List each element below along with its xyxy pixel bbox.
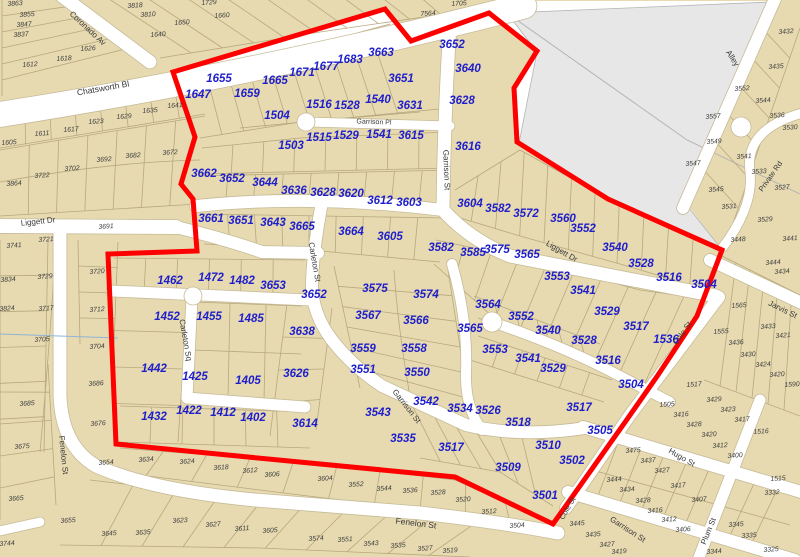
parcel-label[interactable]: 3741: [6, 242, 22, 250]
parcel-label[interactable]: 3611: [235, 525, 250, 533]
selected-parcel-label[interactable]: 1665: [262, 75, 288, 87]
selected-parcel-label[interactable]: 3542: [413, 396, 439, 408]
selected-parcel-label[interactable]: 1462: [157, 275, 183, 287]
parcel-label[interactable]: 3433: [760, 323, 776, 331]
selected-parcel-label[interactable]: 3517: [438, 442, 464, 454]
selected-parcel-label[interactable]: 1528: [334, 100, 360, 112]
parcel-label[interactable]: 3612: [242, 467, 258, 475]
selected-parcel-label[interactable]: 3509: [495, 462, 521, 474]
parcel-label[interactable]: 1517: [686, 381, 702, 389]
selected-parcel-label[interactable]: 3616: [455, 141, 481, 153]
parcel-label[interactable]: 3434: [619, 486, 635, 494]
selected-parcel-label[interactable]: 1442: [141, 363, 167, 375]
selected-parcel-label[interactable]: 3565: [457, 323, 483, 335]
selected-parcel-label[interactable]: 3564: [475, 299, 501, 311]
selected-parcel-label[interactable]: 3574: [413, 289, 439, 301]
selected-parcel-label[interactable]: 3628: [310, 187, 336, 199]
parcel-label[interactable]: 3574: [308, 535, 324, 543]
selected-parcel-label[interactable]: 3585: [460, 247, 486, 259]
cul-de-sac-bulb: [731, 117, 751, 137]
parcel-label[interactable]: 3520: [455, 496, 471, 504]
selected-parcel-label[interactable]: 3651: [388, 73, 414, 85]
parcel-label[interactable]: 3535: [390, 542, 406, 550]
parcel-label[interactable]: 3824: [0, 305, 15, 313]
selected-parcel-label[interactable]: 3504: [618, 379, 644, 391]
parcel-label[interactable]: 3837: [13, 31, 29, 39]
parcel-label[interactable]: 1729: [201, 0, 217, 7]
selected-parcel-label[interactable]: 3551: [350, 364, 376, 376]
selected-parcel-label[interactable]: 3528: [571, 335, 597, 347]
selected-parcel-label[interactable]: 3665: [289, 221, 315, 233]
parcel-label[interactable]: 1635: [142, 107, 158, 115]
parcel-label[interactable]: 1640: [150, 31, 166, 39]
parcel-label[interactable]: 3435: [768, 63, 784, 71]
parcel-label[interactable]: 3448: [730, 236, 746, 244]
parcel-label[interactable]: 3423: [720, 406, 736, 414]
selected-parcel-label[interactable]: 3652: [439, 39, 465, 51]
selected-parcel-label[interactable]: 3540: [535, 325, 561, 337]
selected-parcel-label[interactable]: 3518: [505, 417, 531, 429]
parcel-label[interactable]: 3551: [337, 536, 353, 544]
parcel-label[interactable]: 1641: [167, 102, 183, 110]
selected-parcel-label[interactable]: 1503: [278, 140, 304, 152]
parcel-label[interactable]: 3552: [734, 85, 750, 93]
selected-parcel-label[interactable]: 3541: [570, 285, 596, 297]
parcel-label[interactable]: 3407: [691, 496, 707, 504]
parcel-label[interactable]: 3645: [101, 530, 117, 538]
parcel-label[interactable]: 3704: [89, 343, 105, 351]
selected-parcel-label[interactable]: 3651: [228, 215, 254, 227]
selected-parcel-label[interactable]: 3558: [401, 343, 427, 355]
selected-parcel-label[interactable]: 1529: [333, 130, 359, 142]
parcel-label[interactable]: 3810: [140, 11, 156, 19]
parcel-label[interactable]: 3412: [661, 516, 677, 524]
parcel-label[interactable]: 3729: [37, 273, 53, 281]
parcel-label[interactable]: 3864: [6, 180, 22, 188]
parcel-label[interactable]: 3543: [363, 540, 379, 548]
selected-parcel-label[interactable]: 3636: [281, 185, 307, 197]
parcel-label[interactable]: 3818: [127, 2, 143, 10]
selected-parcel-label[interactable]: 3604: [457, 198, 483, 210]
selected-parcel-label[interactable]: 3528: [628, 258, 654, 270]
selected-parcel-label[interactable]: 3566: [403, 315, 429, 327]
selected-parcel-label[interactable]: 3620: [338, 188, 364, 200]
parcel-label[interactable]: 3424: [755, 361, 771, 369]
parcel-label[interactable]: 1515: [770, 475, 786, 483]
parcel-label[interactable]: 3441: [782, 235, 798, 243]
parcel-label[interactable]: 3344: [706, 548, 722, 556]
parcel-label[interactable]: 3712: [89, 306, 105, 314]
parcel-label[interactable]: 3512: [481, 508, 497, 516]
selected-parcel-label[interactable]: 1455: [196, 311, 222, 323]
parcel-label[interactable]: 3604: [317, 475, 333, 483]
parcel-label[interactable]: 1623: [88, 118, 104, 126]
parcel-label[interactable]: 3635: [135, 529, 151, 537]
street-label: Garrison Pl: [356, 118, 392, 126]
parcel-label[interactable]: 3519: [442, 547, 458, 555]
selected-parcel-label[interactable]: 3662: [191, 168, 217, 180]
parcel-label[interactable]: 3531: [721, 203, 737, 211]
selected-parcel-label[interactable]: 3575: [484, 244, 510, 256]
parcel-label[interactable]: 3544: [376, 485, 392, 493]
parcel-label[interactable]: 3427: [654, 467, 670, 475]
parcel-label[interactable]: 3855: [19, 11, 35, 19]
selected-parcel-label[interactable]: 1412: [210, 407, 236, 419]
selected-parcel-label[interactable]: 3567: [355, 310, 381, 322]
parcel-label[interactable]: 3545: [708, 186, 724, 194]
parcel-label[interactable]: 3445: [569, 520, 585, 528]
parcel-label[interactable]: 1505: [659, 401, 675, 409]
parcel-label[interactable]: 3676: [90, 420, 106, 428]
parcel-label[interactable]: 3605: [262, 527, 278, 535]
selected-parcel-label[interactable]: 3652: [301, 289, 327, 301]
parcel-label[interactable]: 3416: [673, 411, 689, 419]
selected-parcel-label[interactable]: 3582: [428, 242, 454, 254]
parcel-label[interactable]: 1611: [35, 130, 50, 138]
parcel-label[interactable]: 3420: [769, 371, 785, 379]
selected-parcel-label[interactable]: 3653: [260, 280, 286, 292]
selected-parcel-label[interactable]: 3605: [377, 231, 403, 243]
selected-parcel-label[interactable]: 1541: [366, 129, 392, 141]
selected-parcel-label[interactable]: 1540: [365, 94, 391, 106]
selected-parcel-label[interactable]: 1432: [141, 411, 167, 423]
parcel-label[interactable]: 3430: [740, 351, 756, 359]
parcel-label[interactable]: 1650: [174, 19, 190, 27]
selected-parcel-label[interactable]: 3652: [219, 173, 245, 185]
parcel-label[interactable]: 1626: [80, 45, 96, 53]
parcel-label[interactable]: 3432: [778, 28, 794, 36]
parcel-label[interactable]: 3421: [775, 332, 791, 340]
parcel-label[interactable]: 3720: [89, 268, 105, 276]
parcel-label[interactable]: 3528: [430, 489, 446, 497]
selected-parcel-label[interactable]: 1425: [182, 371, 208, 383]
parcel-label[interactable]: 3721: [38, 236, 54, 244]
parcel-label[interactable]: 3654: [98, 459, 114, 467]
parcel-label[interactable]: 1516: [753, 428, 769, 436]
selected-parcel-label[interactable]: 3529: [594, 306, 620, 318]
parcel-label[interactable]: 3533: [751, 168, 767, 176]
selected-parcel-label[interactable]: 3615: [398, 130, 424, 142]
parcel-label[interactable]: 3536: [769, 112, 785, 120]
parcel-label[interactable]: 3332: [764, 489, 780, 497]
selected-parcel-label[interactable]: 3526: [475, 405, 501, 417]
selected-parcel-label[interactable]: 3626: [283, 368, 309, 380]
selected-parcel-label[interactable]: 1472: [198, 272, 224, 284]
parcel-label[interactable]: 3541: [736, 153, 752, 161]
selected-parcel-label[interactable]: 3502: [559, 455, 585, 467]
parcel-label[interactable]: 1612: [22, 61, 38, 69]
parcel-label[interactable]: 3606: [264, 471, 280, 479]
selected-parcel-label[interactable]: 3505: [587, 425, 613, 437]
parcel-label[interactable]: 1618: [56, 55, 72, 63]
selected-parcel-label[interactable]: 3529: [540, 363, 566, 375]
selected-parcel-label[interactable]: 3603: [396, 197, 422, 209]
parcel-label[interactable]: 3527: [774, 184, 790, 192]
parcel-label[interactable]: 3672: [162, 149, 178, 157]
parcel-label[interactable]: 3436: [728, 339, 744, 347]
selected-parcel-label[interactable]: 3664: [338, 226, 364, 238]
parcel-label[interactable]: 1617: [63, 126, 79, 134]
parcel-label[interactable]: 3627: [205, 521, 221, 529]
selected-parcel-label[interactable]: 3612: [367, 195, 393, 207]
selected-parcel-label[interactable]: 3643: [260, 217, 286, 229]
parcel-label[interactable]: 3717: [38, 305, 54, 313]
selected-parcel-label[interactable]: 3541: [515, 353, 541, 365]
parcel-label[interactable]: 3444: [606, 476, 622, 484]
selected-parcel-label[interactable]: 1422: [176, 405, 202, 417]
selected-parcel-label[interactable]: 3565: [514, 249, 540, 261]
parcel-label[interactable]: 3623: [172, 517, 188, 525]
parcel-label[interactable]: 3345: [728, 521, 744, 529]
parcel-label[interactable]: 1660: [214, 12, 230, 20]
parcel-label[interactable]: 3530: [782, 124, 798, 132]
selected-parcel-label[interactable]: 3543: [365, 407, 391, 419]
selected-parcel-label[interactable]: 3552: [570, 223, 596, 235]
selected-parcel-label[interactable]: 3640: [455, 63, 481, 75]
parcel-label[interactable]: 3529: [757, 216, 773, 224]
parcel-label[interactable]: 3549: [706, 138, 722, 146]
selected-parcel-label[interactable]: 3644: [252, 177, 278, 189]
parcel-label[interactable]: 3429: [706, 396, 722, 404]
parcel-label[interactable]: 3552: [348, 481, 364, 489]
parcel-label[interactable]: 3444: [765, 259, 781, 267]
parcel-label[interactable]: 3536: [402, 487, 418, 495]
selected-parcel-label[interactable]: 3516: [656, 272, 682, 284]
parcel-label[interactable]: 3686: [88, 380, 104, 388]
cul-de-sac-bulb: [297, 113, 315, 131]
selected-parcel-label[interactable]: 1482: [229, 275, 255, 287]
parcel-label[interactable]: 3435: [585, 531, 601, 539]
selected-parcel-label[interactable]: 3510: [535, 440, 561, 452]
selected-parcel-label[interactable]: 3559: [350, 343, 376, 355]
selected-parcel-label[interactable]: 3661: [198, 213, 224, 225]
parcel-label[interactable]: 3655: [60, 517, 76, 525]
parcel-label[interactable]: 3722: [34, 172, 50, 180]
parcel-label[interactable]: 3419: [611, 548, 627, 556]
cul-de-sac-bulb: [482, 312, 502, 332]
parcel-label[interactable]: 3705: [34, 336, 50, 344]
parcel-label[interactable]: 3702: [64, 165, 80, 173]
parcel-label[interactable]: 3618: [213, 464, 229, 472]
parcel-label[interactable]: 1565: [731, 302, 747, 310]
parcel-label[interactable]: 3416: [647, 507, 663, 515]
parcel-label[interactable]: 3744: [0, 540, 15, 548]
parcel-label[interactable]: 3417: [734, 416, 750, 424]
selected-parcel-label[interactable]: 1647: [185, 89, 211, 101]
selected-parcel-label[interactable]: 1671: [289, 67, 315, 79]
selected-parcel-label[interactable]: 1452: [154, 311, 180, 323]
selected-parcel-label[interactable]: 3628: [449, 95, 475, 107]
parcel-label[interactable]: 1555: [713, 328, 729, 336]
parcel-label[interactable]: 3691: [98, 223, 114, 231]
parcel-label[interactable]: 3428: [686, 421, 702, 429]
parcel-label[interactable]: 3412: [712, 442, 728, 450]
parcel-label[interactable]: 3547: [685, 160, 701, 168]
selected-parcel-label[interactable]: 3553: [544, 271, 570, 283]
parcel-label[interactable]: 3420: [701, 431, 717, 439]
selected-parcel-label[interactable]: 1655: [206, 73, 232, 85]
selected-parcel-label[interactable]: 1683: [337, 54, 363, 66]
parcel-label[interactable]: 3557: [705, 113, 721, 121]
selected-parcel-label[interactable]: 3614: [292, 418, 318, 430]
parcel-label[interactable]: 3325: [763, 546, 779, 554]
selected-parcel-label[interactable]: 3517: [566, 402, 592, 414]
parcel-label[interactable]: 3682: [125, 152, 141, 160]
parcel-label[interactable]: 1605: [1, 139, 17, 147]
parcel-label[interactable]: 3544: [755, 97, 771, 105]
selected-parcel-label[interactable]: 3575: [362, 283, 388, 295]
street-label: Garrison St: [441, 150, 451, 192]
selected-parcel-label[interactable]: 1402: [240, 412, 266, 424]
parcel-label[interactable]: 3665: [8, 495, 24, 503]
parcel-label[interactable]: 3428: [635, 497, 651, 505]
selected-parcel-label[interactable]: 3582: [485, 203, 511, 215]
parcel-label[interactable]: 3685: [19, 400, 35, 408]
selected-parcel-label[interactable]: 1659: [234, 88, 260, 100]
parcel-label[interactable]: 3847: [16, 21, 32, 29]
parcel-label[interactable]: 3504: [509, 522, 525, 530]
selected-parcel-label[interactable]: 3516: [595, 355, 621, 367]
parcel-label[interactable]: 3437: [640, 457, 656, 465]
selected-parcel-label[interactable]: 1516: [306, 99, 332, 111]
selected-parcel-label[interactable]: 3540: [602, 242, 628, 254]
selected-parcel-label[interactable]: 1504: [264, 110, 290, 122]
selected-parcel-label[interactable]: 3553: [482, 344, 508, 356]
parcel-label[interactable]: 3834: [0, 276, 16, 284]
selected-parcel-label[interactable]: 3501: [532, 490, 558, 502]
parcel-label[interactable]: 3417: [670, 482, 686, 490]
parcel-label[interactable]: 1705: [451, 0, 467, 8]
selected-parcel-label[interactable]: 3631: [397, 100, 423, 112]
selected-parcel-label[interactable]: 3517: [623, 321, 649, 333]
selected-parcel-label[interactable]: 1485: [238, 313, 264, 325]
parcel-label[interactable]: 3624: [179, 458, 195, 466]
selected-parcel-label[interactable]: 1515: [306, 132, 332, 144]
selected-parcel-label[interactable]: 3504: [691, 279, 717, 291]
selected-parcel-label[interactable]: 1677: [313, 61, 339, 73]
selected-parcel-label[interactable]: 3572: [513, 208, 539, 220]
parcel-map-canvas[interactable]: 3863385538473837162616181612381838101650…: [0, 0, 800, 557]
parcel-label[interactable]: 3475: [625, 447, 641, 455]
parcel-label[interactable]: 3634: [138, 456, 154, 464]
parcel-map[interactable]: 3863385538473837162616181612381838101650…: [0, 0, 800, 557]
parcel-label[interactable]: 3863: [7, 0, 23, 8]
selected-parcel-label[interactable]: 3550: [404, 367, 430, 379]
selected-parcel-label[interactable]: 3638: [289, 326, 315, 338]
selected-parcel-label[interactable]: 3535: [390, 433, 416, 445]
parcel-label[interactable]: 1629: [116, 113, 132, 121]
parcel-label[interactable]: 3692: [96, 156, 112, 164]
cul-de-sac-bulb: [184, 287, 202, 305]
parcel-label[interactable]: 1590: [784, 381, 800, 389]
parcel-label[interactable]: 3335: [741, 532, 757, 540]
selected-parcel-label[interactable]: 3552: [508, 311, 534, 323]
selected-parcel-label[interactable]: 1405: [235, 375, 261, 387]
selected-parcel-label[interactable]: 3663: [368, 47, 394, 59]
parcel-label[interactable]: 7564: [420, 10, 436, 18]
parcel-label[interactable]: 3427: [599, 541, 615, 549]
parcel-label[interactable]: 3527: [417, 545, 433, 553]
parcel-label[interactable]: 3675: [14, 443, 30, 451]
parcel-label[interactable]: 3434: [774, 268, 790, 276]
parcel-label[interactable]: 3406: [675, 526, 691, 534]
parcel-label[interactable]: 3400: [727, 452, 743, 460]
selected-parcel-label[interactable]: 3534: [447, 403, 473, 415]
